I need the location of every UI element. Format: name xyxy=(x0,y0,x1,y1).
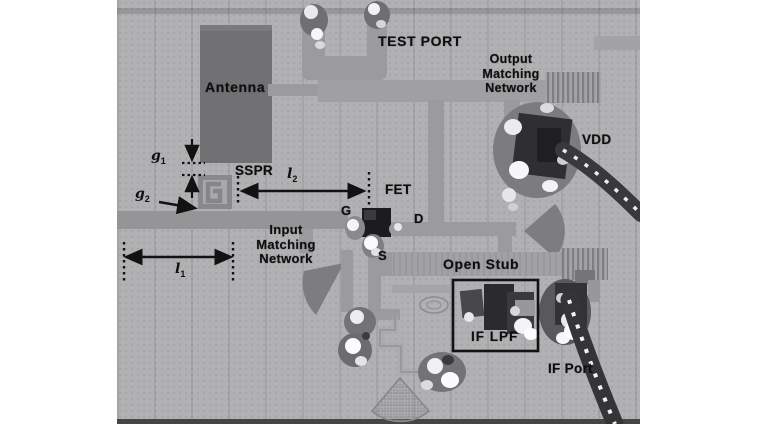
if-port-label: IF Port xyxy=(548,362,593,376)
output-matching-label: Output Matching Network xyxy=(461,52,561,96)
dim-g1-sub: 1 xyxy=(161,156,166,166)
drain-radial-stub xyxy=(524,204,565,258)
test-port-solder-right xyxy=(364,1,390,29)
output-matching-line1: Output xyxy=(461,52,561,67)
antenna-label: Antenna xyxy=(205,80,265,95)
source-label: S xyxy=(378,249,387,263)
if-lpf-label: IF LPF xyxy=(471,330,518,344)
dim-label-g1: g1 xyxy=(151,148,166,166)
input-radial-stub xyxy=(303,263,344,315)
fet-transistor xyxy=(362,208,391,237)
dim-label-l1: l1 xyxy=(175,261,185,279)
dim-label-g2: g2 xyxy=(135,186,150,204)
input-matching-label: Input Matching Network xyxy=(236,223,336,267)
sspr-label: SSPR xyxy=(235,164,273,178)
output-matching-line2: Matching xyxy=(461,67,561,82)
input-matching-line1: Input xyxy=(236,223,336,238)
input-matching-line2: Matching xyxy=(236,238,336,253)
sspr-resonator xyxy=(198,175,232,209)
dim-l2-sub: 2 xyxy=(292,174,297,184)
bottom-center-solder xyxy=(418,352,466,392)
bottom-radial-stub xyxy=(372,378,429,421)
open-stub-label: Open Stub xyxy=(443,257,519,272)
output-matching-line3: Network xyxy=(461,81,561,96)
vdd-cable xyxy=(563,150,640,214)
test-port-label: TEST PORT xyxy=(378,34,462,49)
pcb-photo: Antenna TEST PORT Output Matching Networ… xyxy=(117,0,640,424)
figure-canvas: Antenna TEST PORT Output Matching Networ… xyxy=(0,0,760,436)
vdd-label: VDD xyxy=(582,133,611,147)
gate-label: G xyxy=(341,204,351,218)
dim-g2-base: g xyxy=(135,186,145,202)
fet-label: FET xyxy=(385,183,411,197)
dim-label-l2: l2 xyxy=(287,166,297,184)
drain-label: D xyxy=(414,212,424,226)
dim-l1-sub: 1 xyxy=(180,269,185,279)
dim-g1-base: g xyxy=(151,148,161,164)
input-matching-line3: Network xyxy=(236,252,336,267)
meander-solder xyxy=(338,307,376,367)
dim-g2-sub: 2 xyxy=(145,194,150,204)
